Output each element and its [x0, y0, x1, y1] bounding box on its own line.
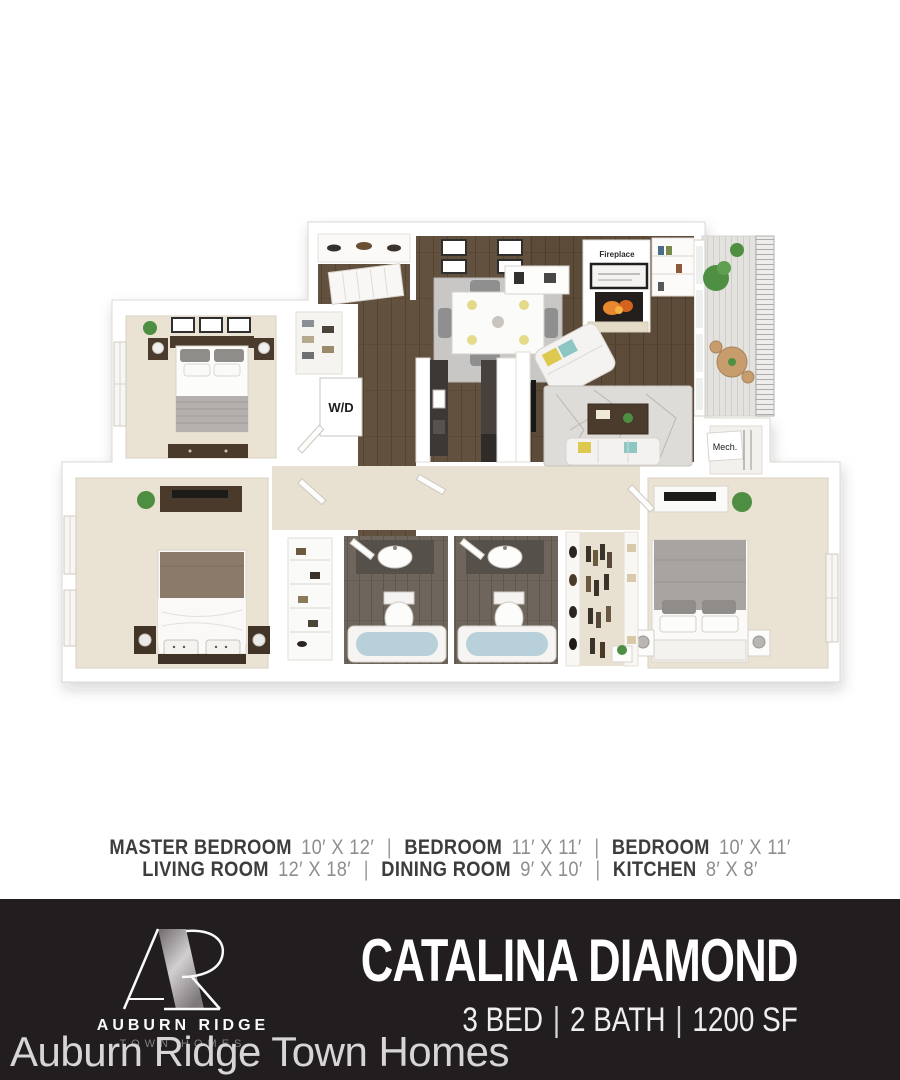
- balcony: [694, 236, 774, 416]
- wall-frame: [200, 318, 222, 332]
- lamp: [153, 343, 164, 354]
- fireplace-art: [591, 264, 647, 288]
- floor-plan-image: Fireplace: [0, 0, 900, 740]
- dimensions-line-1: MASTER BEDROOM 10′ X 12′ | BEDROOM 11′ X…: [68, 836, 833, 858]
- balcony-chair: [742, 371, 754, 383]
- area-spec: 1200 SF: [693, 1001, 798, 1039]
- dining-chair: [438, 308, 452, 338]
- room-size: 10′ X 12′: [301, 835, 374, 859]
- tv: [531, 380, 536, 432]
- room-name: MASTER BEDROOM: [109, 835, 291, 859]
- bed-2: [158, 550, 246, 664]
- tub-water: [466, 632, 548, 656]
- room-size: 8′ X 8′: [706, 857, 758, 881]
- room-size: 12′ X 18′: [278, 857, 351, 881]
- dresser: [168, 444, 248, 458]
- fireplace-label: Fireplace: [599, 250, 635, 259]
- room-name: BEDROOM: [612, 835, 710, 859]
- pantry-shelves: [652, 238, 694, 296]
- plant: [137, 491, 155, 509]
- lamp: [259, 343, 270, 354]
- mech-label: Mech.: [713, 442, 738, 452]
- floor-plan-flyer: Fireplace: [0, 0, 900, 1080]
- room-name: BEDROOM: [404, 835, 502, 859]
- wall-frame: [228, 318, 250, 332]
- plant: [143, 321, 157, 335]
- kitchen-counter-right: [481, 360, 497, 434]
- dimensions-line-2: LIVING ROOM 12′ X 18′ | DINING ROOM 9′ X…: [68, 858, 833, 880]
- lamp: [253, 634, 265, 646]
- wall-frame: [172, 318, 194, 332]
- tv: [664, 492, 716, 501]
- lamp: [753, 636, 765, 648]
- tv: [172, 490, 228, 498]
- plant: [732, 492, 752, 512]
- room-size: 9′ X 10′: [520, 857, 582, 881]
- media-console: [160, 486, 242, 512]
- room-dimensions: MASTER BEDROOM 10′ X 12′ | BEDROOM 11′ X…: [0, 836, 900, 880]
- hall-carpet: [272, 466, 640, 530]
- room-size: 10′ X 11′: [719, 835, 791, 859]
- room-name: LIVING ROOM: [142, 857, 269, 881]
- wall-frame: [442, 240, 466, 255]
- hall-closet: [288, 538, 332, 660]
- wall-frame: [442, 260, 466, 273]
- kitchen-counter-top: [505, 266, 569, 294]
- fireplace: Fireplace: [583, 240, 650, 332]
- room-size: 11′ X 11′: [511, 835, 581, 859]
- lamp: [637, 636, 649, 648]
- tv-wall: [516, 352, 530, 462]
- master-bed: [176, 346, 248, 432]
- watermark: Auburn Ridge Town Homes: [10, 1028, 509, 1076]
- refrigerator: [481, 434, 497, 462]
- lamp: [139, 634, 151, 646]
- baths-spec: 2 BATH: [570, 1001, 666, 1039]
- bed-3: [652, 540, 748, 662]
- plan-title-block: CATALINA DIAMOND 3 BED|2 BATH|1200 SF: [215, 931, 798, 1037]
- balcony-chair: [710, 341, 722, 353]
- wall-frame: [498, 240, 522, 255]
- plan-title: CATALINA DIAMOND: [361, 931, 798, 991]
- mechanical-closet: Mech.: [707, 426, 762, 474]
- tub-water: [356, 632, 438, 656]
- room-name: KITCHEN: [613, 857, 697, 881]
- room-name: DINING ROOM: [381, 857, 511, 881]
- dining-chair: [544, 308, 558, 338]
- wd-label: W/D: [328, 400, 353, 415]
